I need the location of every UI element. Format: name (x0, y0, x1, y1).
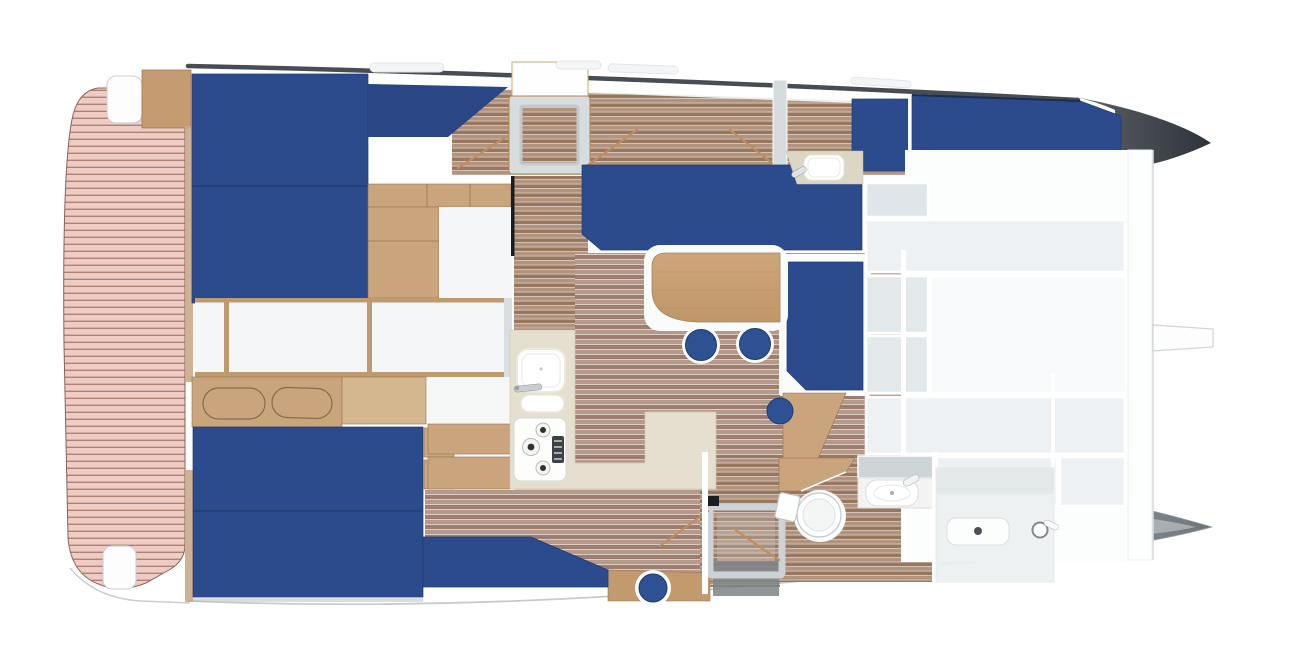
washbasin-drain (890, 491, 894, 495)
corridor-bulkhead (773, 80, 787, 177)
locker-a (866, 183, 928, 217)
wardrobe-shelf-bar (368, 184, 511, 207)
aft-deck-planking (64, 88, 185, 589)
port-aft-berth (192, 74, 368, 303)
cabin2-trim-bottom (195, 372, 512, 377)
dining-table (652, 253, 780, 322)
starboard-aft-berth (193, 427, 423, 597)
bar-stool-3 (767, 398, 793, 424)
bar-stool-4 (639, 574, 667, 602)
sliding-door-slot (511, 176, 515, 256)
yacht-floorplan (0, 0, 1291, 660)
locker-b (866, 276, 928, 333)
stove-burner-1-dot (540, 427, 546, 433)
locker-big (931, 276, 1125, 393)
basin-cabinet-band (858, 456, 934, 478)
toilet-bowl-inner (803, 499, 835, 531)
deck-bench-seat-top (107, 76, 142, 123)
port-washroom (786, 151, 863, 184)
galley-sink-drain (539, 367, 542, 370)
galley-cabinet-1 (428, 424, 510, 454)
salon-grid-gap (901, 250, 906, 562)
boarding-step (142, 70, 191, 128)
headboard-extension (342, 377, 426, 424)
shower-drain-dot (974, 527, 982, 535)
crossbeam-tab (1153, 325, 1213, 351)
side-sofa (787, 262, 863, 390)
locker-c (866, 336, 928, 393)
stove-burner-3-dot (540, 465, 546, 471)
roof-window-4 (851, 77, 911, 88)
floorplan-canvas (0, 0, 1291, 660)
galley-sink-small (521, 395, 564, 412)
locker-f (1060, 457, 1125, 506)
bar-stool-2 (740, 329, 771, 360)
wardrobe-cells (368, 207, 439, 298)
washbasin-port (804, 155, 844, 180)
roof-window-2 (556, 61, 601, 69)
hatch-opening (521, 106, 578, 164)
aft-deck (64, 70, 193, 602)
cabin2-trim-v2 (367, 298, 372, 377)
bar-stool-1 (686, 330, 717, 361)
headboard (192, 377, 342, 427)
galley-faucet-base (515, 386, 519, 390)
galley-cabinet-2 (428, 457, 510, 489)
stove-burner-2-dot (528, 444, 535, 451)
cabin2-trim-v1 (224, 298, 229, 377)
deck-side-trim-lower (185, 470, 193, 602)
cabin2-floor (195, 298, 512, 377)
shower-room (936, 468, 1059, 582)
companionway-hatch (509, 62, 590, 174)
port-aft-cabin (192, 74, 515, 332)
roof-window-1 (370, 63, 444, 72)
shower-back-band (936, 468, 1054, 494)
berth2-skirt (193, 597, 423, 602)
deck-bench-seat-bottom (103, 546, 136, 589)
cabin2-trim-top (195, 298, 512, 303)
foredeck-right-column (1128, 150, 1152, 560)
roof-window-3 (608, 64, 678, 74)
bath-wall-left (702, 452, 708, 594)
